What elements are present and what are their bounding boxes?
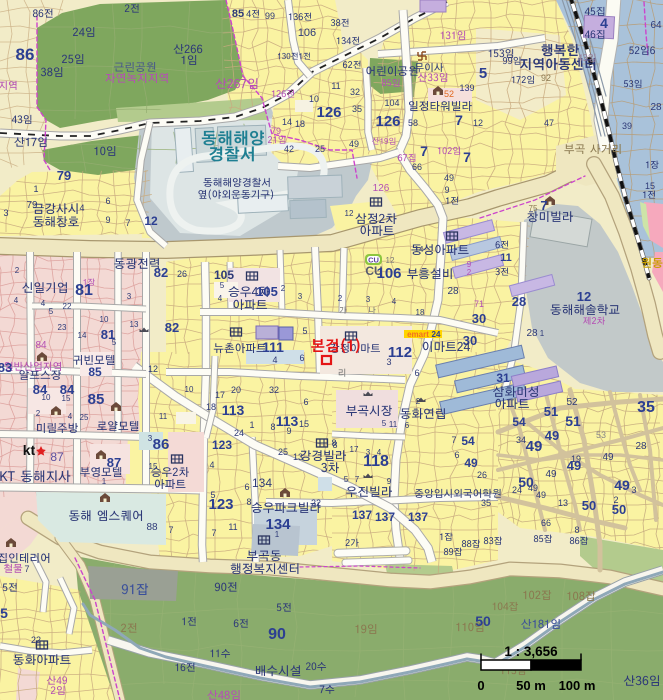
svg-text:49: 49 [602,452,614,463]
svg-text:4: 4 [272,355,277,365]
svg-text:3: 3 [386,357,391,367]
svg-text:134: 134 [252,476,272,490]
svg-text:126: 126 [375,113,400,130]
svg-text:25: 25 [278,447,288,457]
svg-text:24: 24 [432,330,441,339]
svg-text:137: 137 [408,510,428,524]
svg-text:86: 86 [16,45,35,64]
svg-text:105: 105 [214,268,234,282]
svg-text:79: 79 [271,126,281,136]
svg-text:3: 3 [298,292,303,301]
svg-text:1 : 3,656: 1 : 3,656 [504,644,558,659]
svg-text:28: 28 [526,328,538,339]
svg-text:11: 11 [331,81,340,91]
svg-text:9: 9 [105,215,110,225]
svg-text:12: 12 [345,209,354,218]
svg-text:54: 54 [512,415,526,429]
svg-text:4: 4 [209,460,214,470]
svg-text:2: 2 [416,397,421,406]
svg-text:106: 106 [376,265,401,282]
svg-text:113: 113 [222,402,245,418]
svg-text:10: 10 [42,393,51,402]
svg-text:111: 111 [262,339,284,355]
svg-text:10: 10 [100,315,109,324]
svg-text:2: 2 [613,495,618,505]
svg-text:13: 13 [558,498,568,508]
svg-text:1: 1 [33,184,38,194]
svg-text:4: 4 [14,296,19,305]
svg-text:4: 4 [377,448,382,457]
svg-text:1: 1 [249,420,254,430]
svg-text:88: 88 [146,522,158,533]
svg-text:49: 49 [349,139,359,149]
svg-text:39: 39 [622,121,632,131]
svg-text:15: 15 [645,181,655,191]
svg-text:30: 30 [463,333,477,348]
svg-text:5: 5 [382,419,387,428]
svg-text:75: 75 [529,204,538,213]
svg-text:54: 54 [461,434,475,448]
svg-text:32: 32 [269,385,279,395]
svg-text:6: 6 [303,397,308,407]
svg-text:49: 49 [464,456,478,470]
svg-text:4: 4 [41,299,46,308]
svg-text:7: 7 [125,218,130,228]
svg-text:9: 9 [387,477,392,486]
svg-text:7: 7 [451,435,456,445]
svg-text:11: 11 [389,420,398,429]
svg-text:9: 9 [444,185,449,195]
svg-text:5: 5 [49,307,54,316]
svg-text:kt: kt [23,442,36,458]
svg-text:9: 9 [286,426,291,436]
svg-text:24: 24 [512,485,522,495]
svg-text:123: 123 [212,438,232,452]
svg-text:23: 23 [58,323,67,332]
svg-text:82: 82 [165,320,179,335]
svg-text:139: 139 [459,83,474,93]
svg-text:13: 13 [130,320,139,329]
svg-text:26: 26 [477,470,487,480]
svg-text:11: 11 [228,522,237,532]
svg-text:emart: emart [407,330,429,339]
svg-text:42: 42 [284,144,294,154]
svg-text:7: 7 [540,198,547,213]
svg-text:35: 35 [637,399,655,416]
svg-text:49: 49 [545,428,559,443]
svg-text:112: 112 [388,344,412,361]
svg-text:28: 28 [447,286,459,297]
svg-text:5: 5 [0,605,8,621]
svg-text:126: 126 [316,104,341,121]
svg-text:81: 81 [75,282,93,299]
svg-text:28: 28 [650,102,662,113]
svg-text:79: 79 [57,168,71,183]
svg-text:10: 10 [185,385,194,394]
svg-text:66: 66 [412,162,422,172]
svg-text:52: 52 [444,89,454,99]
svg-text:2: 2 [36,409,41,418]
svg-text:49: 49 [444,173,454,183]
svg-text:2: 2 [281,284,286,293]
svg-text:50: 50 [475,613,491,629]
svg-text:25: 25 [80,413,89,422]
svg-text:20: 20 [231,385,241,395]
svg-text:49: 49 [536,490,546,500]
svg-text:35: 35 [481,498,491,508]
svg-text:90: 90 [268,626,286,643]
svg-text:105: 105 [256,284,278,299]
svg-text:2: 2 [467,268,472,277]
svg-text:7: 7 [463,149,471,165]
svg-text:24: 24 [234,428,244,438]
svg-text:11: 11 [500,252,512,264]
svg-text:49: 49 [614,477,630,493]
svg-text:17: 17 [350,445,359,454]
svg-text:6: 6 [454,450,459,460]
svg-text:49: 49 [567,458,581,473]
svg-text:6: 6 [244,482,249,492]
svg-text:85: 85 [88,365,102,379]
svg-text:6: 6 [405,421,410,430]
svg-text:82: 82 [154,265,168,280]
svg-text:4: 4 [392,297,397,306]
svg-text:1: 1 [102,477,107,486]
svg-text:18: 18 [295,119,305,129]
svg-text:15: 15 [299,419,309,429]
svg-text:12: 12 [386,256,395,265]
svg-text:17: 17 [215,390,225,400]
svg-text:12: 12 [577,289,591,304]
svg-text:11: 11 [159,412,168,421]
svg-text:84: 84 [35,340,47,351]
svg-text:49: 49 [526,438,543,455]
svg-text:10: 10 [309,94,319,104]
svg-text:66: 66 [541,518,551,528]
svg-text:5: 5 [479,65,487,82]
svg-text:7: 7 [355,475,360,484]
svg-text:25: 25 [315,144,325,154]
svg-text:3: 3 [366,448,371,457]
svg-text:50 m: 50 m [516,678,546,693]
svg-text:87: 87 [50,450,64,464]
svg-text:4: 4 [79,203,84,213]
svg-text:18: 18 [416,308,425,317]
svg-text:137: 137 [375,510,395,524]
svg-text:53: 53 [596,430,606,440]
svg-text:123: 123 [208,496,233,513]
svg-text:8: 8 [574,525,579,535]
svg-text:58: 58 [408,118,418,128]
svg-text:12: 12 [473,118,483,128]
svg-text:7: 7 [24,564,29,574]
svg-text:3: 3 [127,292,132,301]
svg-text:51: 51 [544,404,558,419]
svg-text:15: 15 [62,394,71,403]
svg-text:32: 32 [350,87,360,97]
svg-text:6: 6 [105,196,110,206]
svg-text:4: 4 [600,15,608,31]
svg-text:26: 26 [177,269,187,279]
svg-text:2: 2 [15,266,20,275]
svg-text:8: 8 [246,497,251,507]
svg-text:51: 51 [565,413,581,429]
svg-text:7: 7 [455,112,463,128]
svg-text:3: 3 [631,485,636,495]
svg-text:30: 30 [472,311,486,326]
svg-text:86: 86 [153,436,170,453]
svg-text:83: 83 [0,360,12,375]
svg-text:104: 104 [384,98,399,108]
svg-text:1: 1 [275,530,280,539]
svg-text:22: 22 [311,498,321,508]
svg-text:99: 99 [265,11,275,21]
svg-text:3: 3 [148,434,153,443]
svg-text:92: 92 [541,73,551,83]
svg-text:4: 4 [218,294,223,303]
svg-text:4: 4 [68,412,73,421]
svg-text:106: 106 [298,27,316,39]
svg-text:28: 28 [635,441,647,452]
svg-text:1: 1 [540,329,545,338]
svg-text:6: 6 [299,353,304,363]
svg-text:7: 7 [168,525,173,535]
svg-text:8: 8 [270,422,275,432]
svg-text:5: 5 [112,338,117,347]
svg-text:49: 49 [545,469,557,480]
svg-text:3: 3 [3,208,8,218]
svg-text:35: 35 [352,104,362,114]
svg-text:12: 12 [144,214,158,228]
svg-text:47: 47 [544,118,554,128]
svg-text:18: 18 [206,402,216,412]
svg-text:5: 5 [344,475,349,484]
svg-text:137: 137 [352,508,372,522]
svg-text:6: 6 [414,368,419,378]
svg-text:12: 12 [148,364,158,374]
svg-text:3: 3 [366,295,371,304]
svg-text:5: 5 [220,281,225,290]
svg-text:85: 85 [232,8,244,20]
svg-text:14: 14 [78,331,87,340]
svg-text:22: 22 [31,635,41,645]
svg-text:0: 0 [477,678,484,693]
svg-text:5: 5 [302,326,307,336]
svg-text:14: 14 [415,245,424,254]
svg-text:100 m: 100 m [559,678,596,693]
svg-text:64: 64 [650,20,662,31]
svg-text:14: 14 [282,117,292,127]
svg-text:7: 7 [420,143,428,159]
svg-text:7: 7 [211,528,216,538]
svg-text:34: 34 [516,435,526,445]
svg-text:22: 22 [63,302,72,311]
svg-text:8: 8 [332,440,337,450]
svg-text:31: 31 [496,371,510,385]
svg-text:52: 52 [566,397,578,408]
svg-text:2: 2 [338,294,343,303]
svg-text:126: 126 [373,183,390,194]
svg-text:85: 85 [88,391,105,408]
svg-text:79: 79 [26,200,38,211]
svg-text:13: 13 [293,452,303,462]
svg-text:28: 28 [512,294,526,309]
svg-text:50: 50 [582,498,596,513]
svg-text:71: 71 [474,299,484,309]
